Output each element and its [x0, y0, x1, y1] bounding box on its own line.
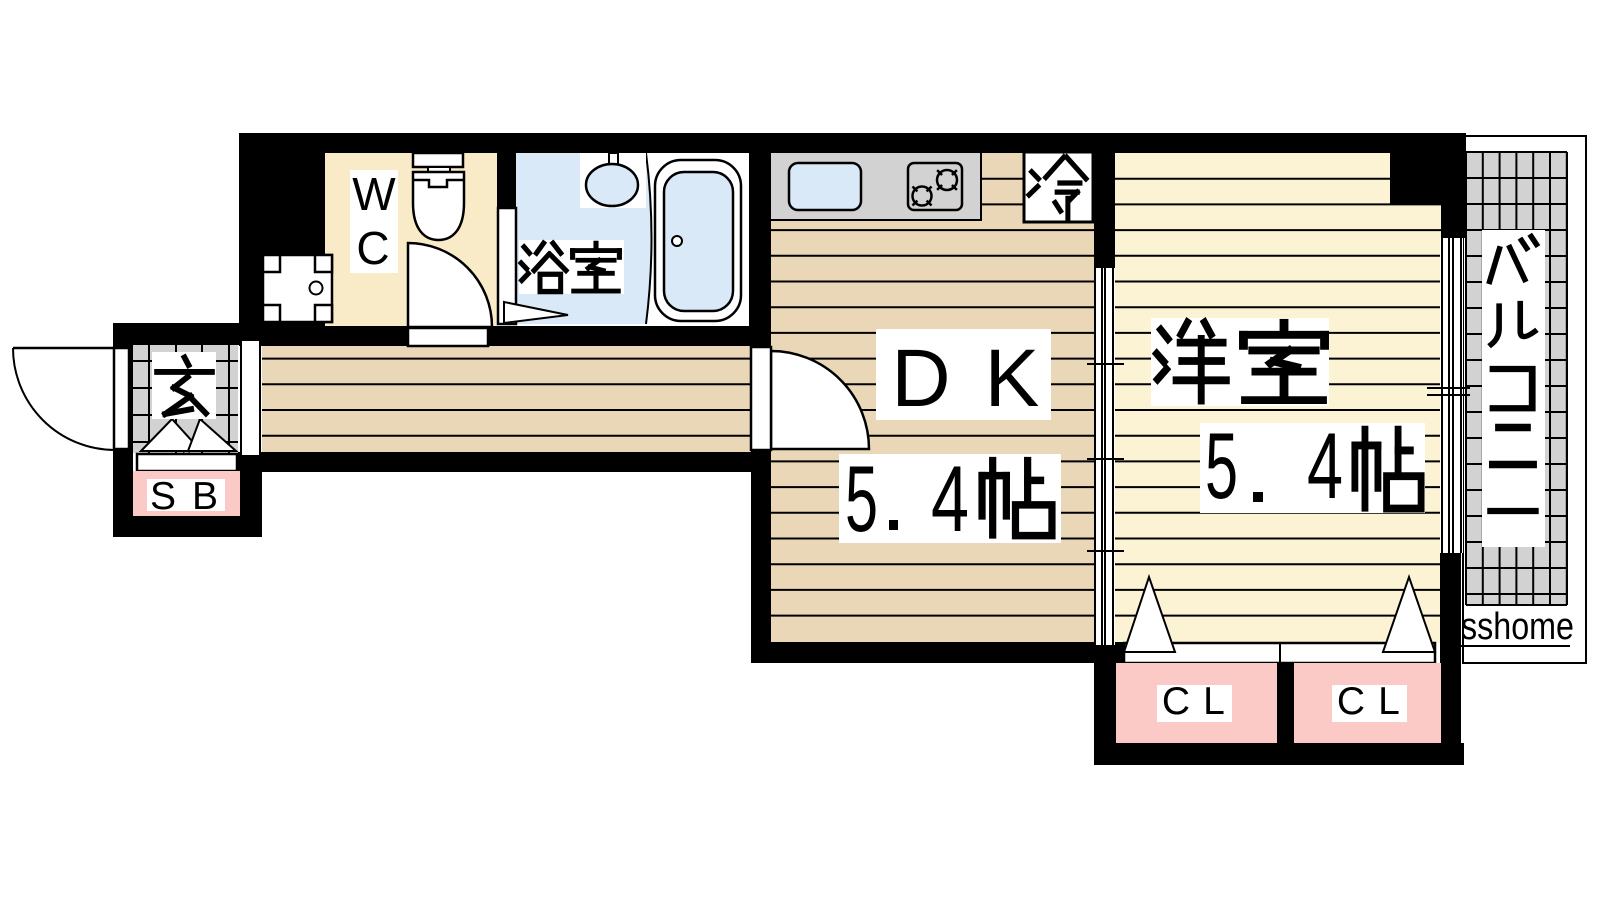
svg-text:L: L	[1378, 680, 1400, 723]
svg-text:B: B	[192, 475, 218, 518]
svg-text:W: W	[352, 168, 396, 220]
svg-text:5: 5	[1205, 413, 1238, 518]
svg-text:S: S	[150, 475, 176, 518]
svg-text:5: 5	[845, 446, 878, 551]
svg-text:D: D	[891, 333, 950, 424]
svg-text:4: 4	[1307, 413, 1343, 518]
svg-text:sshome: sshome	[1461, 606, 1574, 648]
svg-text:C: C	[1162, 680, 1190, 723]
svg-text:K: K	[985, 333, 1040, 424]
svg-text:4: 4	[931, 446, 969, 551]
svg-text:C: C	[1337, 680, 1365, 723]
svg-text:L: L	[1203, 680, 1225, 723]
svg-text:C: C	[356, 222, 389, 274]
